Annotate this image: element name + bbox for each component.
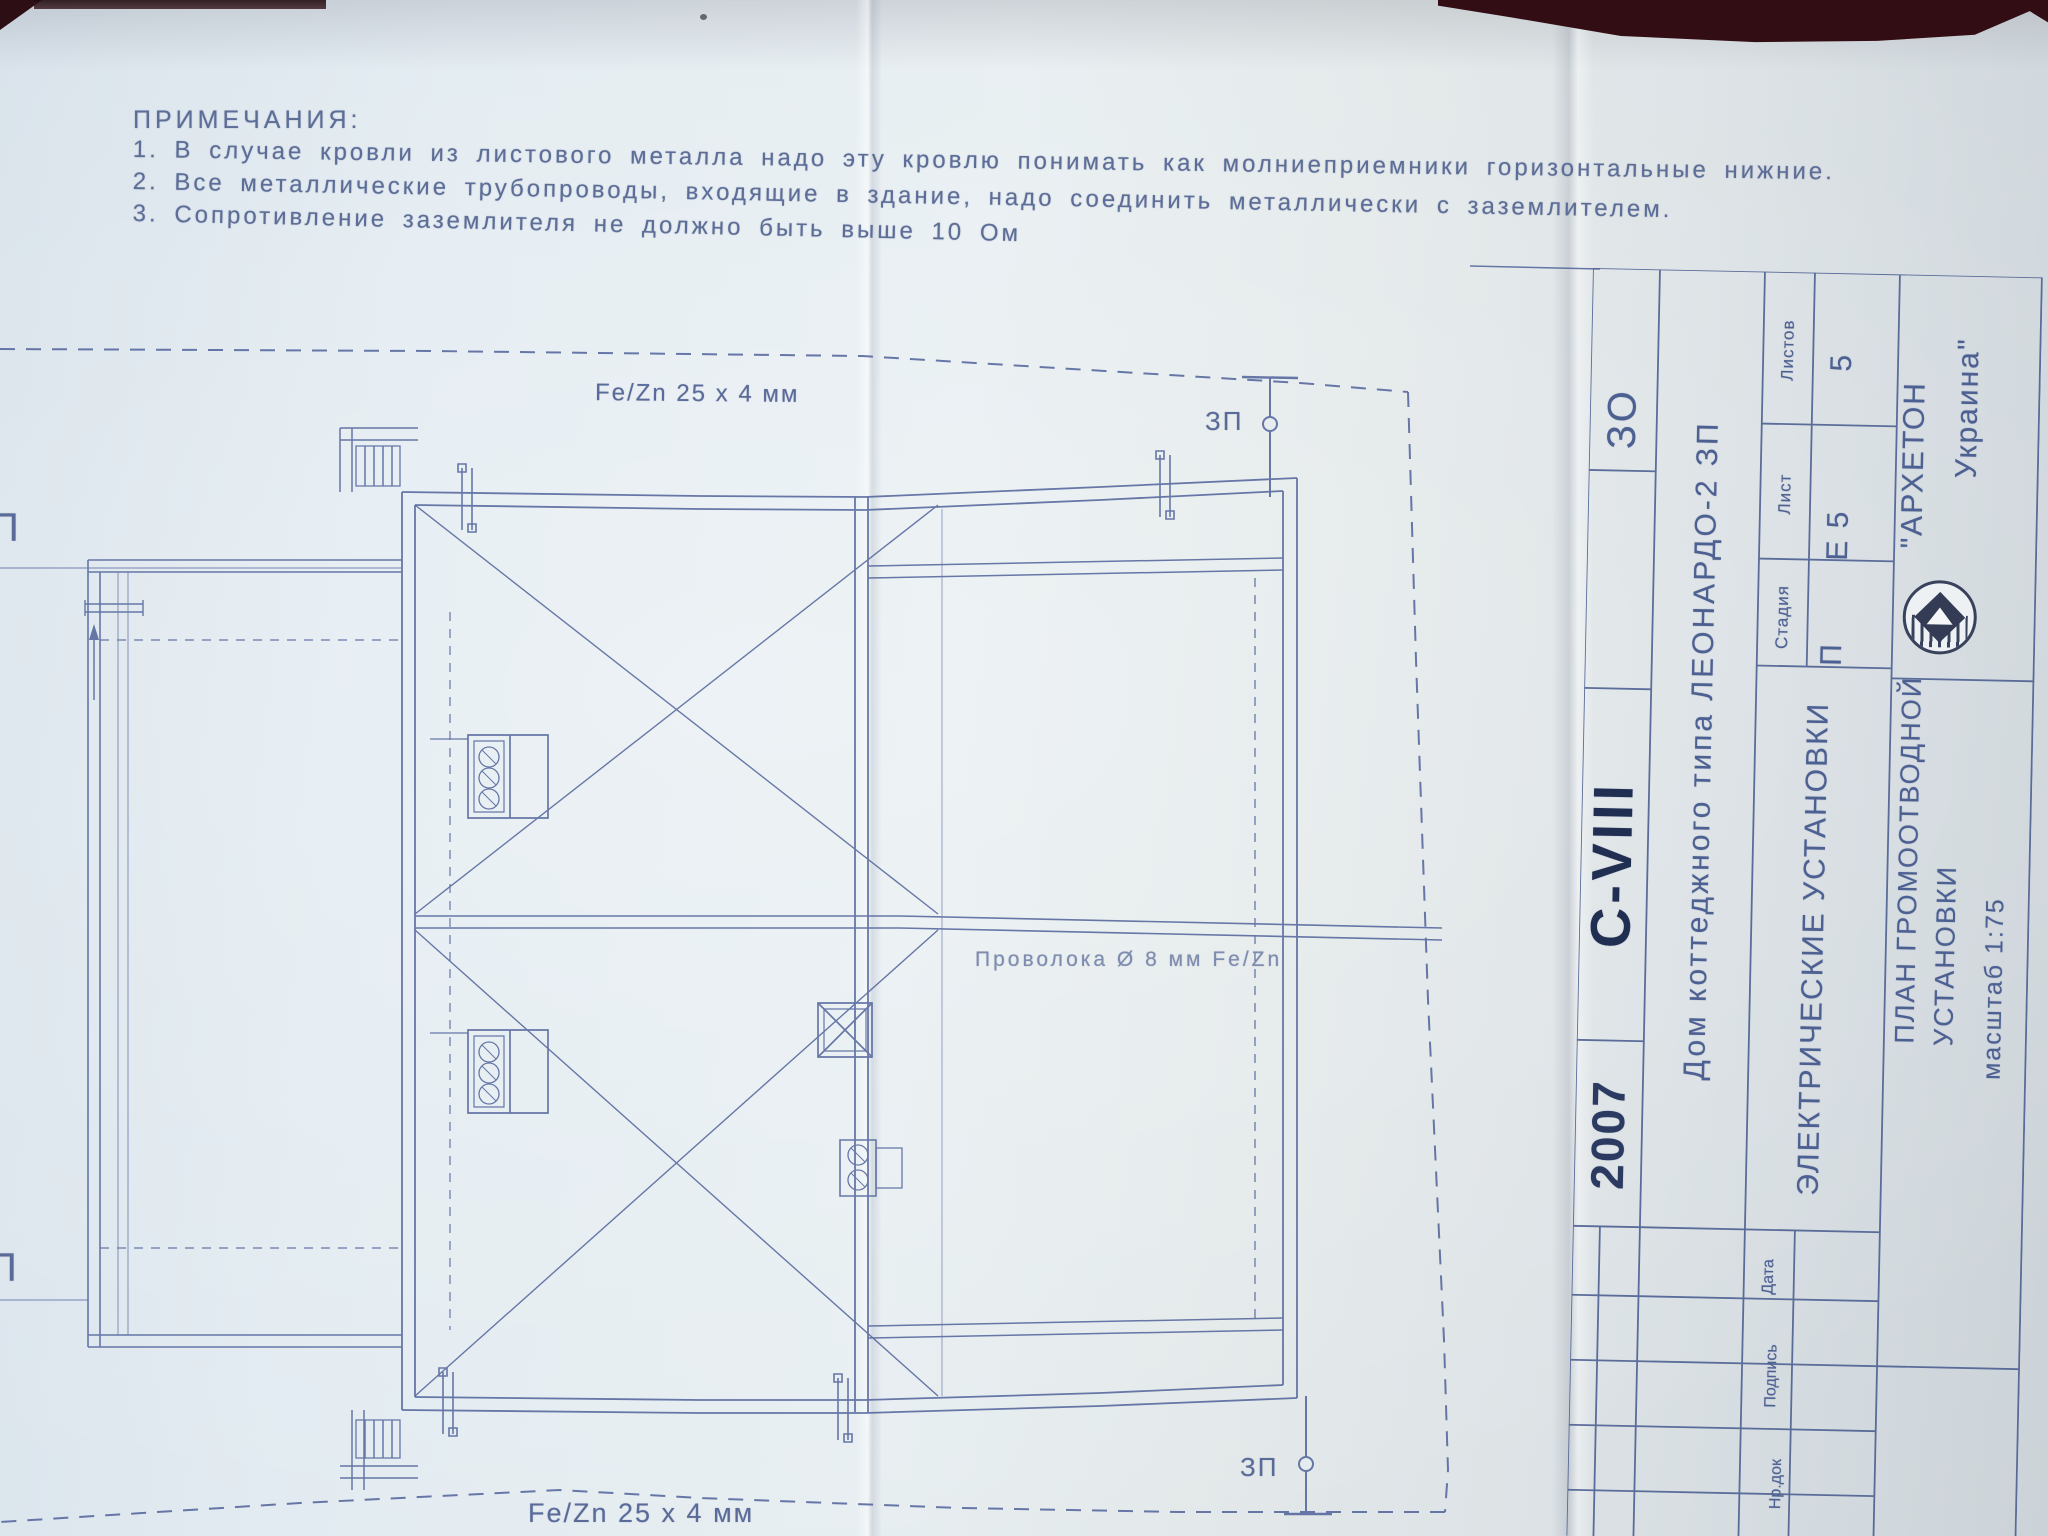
logo-mountain-icon [1927,607,1953,625]
column-docnum-label: Нр.док [1767,1459,1786,1510]
ground-loop-ticks [1242,377,1332,1514]
edge-label-top: П [0,506,21,551]
drawing-scale: масштаб 1:75 [1978,897,2011,1080]
down-conductor-bottom [1299,1396,1313,1512]
porch-top [340,428,418,492]
porch-bottom [340,1410,418,1490]
series-code: C-VIII [1577,780,1645,948]
company-name-line2: Украина" [1950,337,1987,479]
chimney-2 [430,1030,548,1113]
zp-label-bottom: ЗП [1240,1452,1278,1483]
archeton-logo [1902,580,1978,656]
roof-ridge-and-hips [415,505,1442,1396]
column-date-label: Дата [1760,1259,1779,1295]
year: 2007 [1580,1079,1636,1190]
sheets-value: 5 [1825,355,1859,372]
column-signature-label: Подпись [1762,1344,1781,1408]
company-name-line1: "АРХЕТОН [1895,381,1932,549]
tape-label-bottom: Fe/Zn 25 x 4 мм [528,1498,754,1529]
sheet-label: Лист [1775,473,1796,514]
building-roof-outline [402,478,1297,1413]
title-block: ЗО C-VIII 2007 Дом коттеджного типа ЛЕОН… [1566,268,2042,1536]
notes-title: ПРИМЕЧАНИЯ: [133,106,361,135]
roof-bracket-symbols [439,451,1174,1442]
sheet-value: Е 5 [1821,509,1856,561]
zp-label-top: ЗП [1205,406,1243,437]
blueprint-photo: ПРИМЕЧАНИЯ: 1. В случае кровли из листов… [0,0,2048,1536]
sheets-label: Листов [1778,319,1799,381]
edge-label-bottom: П [0,1246,19,1291]
chimney-1 [430,735,548,818]
tape-label-top: Fe/Zn 25 x 4 мм [595,379,800,409]
chimney-3 [840,1140,902,1196]
stage-label: Стадия [1772,585,1793,649]
drawing-title-line2: УСТАНОВКИ [1928,865,1963,1047]
left-annex [0,560,450,1347]
doc-code: ЗО [1600,388,1646,450]
stage-value: П [1815,644,1849,666]
frame-line-to-title-block [1470,266,1600,269]
wire-label: Проволока Ø 8 мм Fe/Zn [975,948,1282,972]
